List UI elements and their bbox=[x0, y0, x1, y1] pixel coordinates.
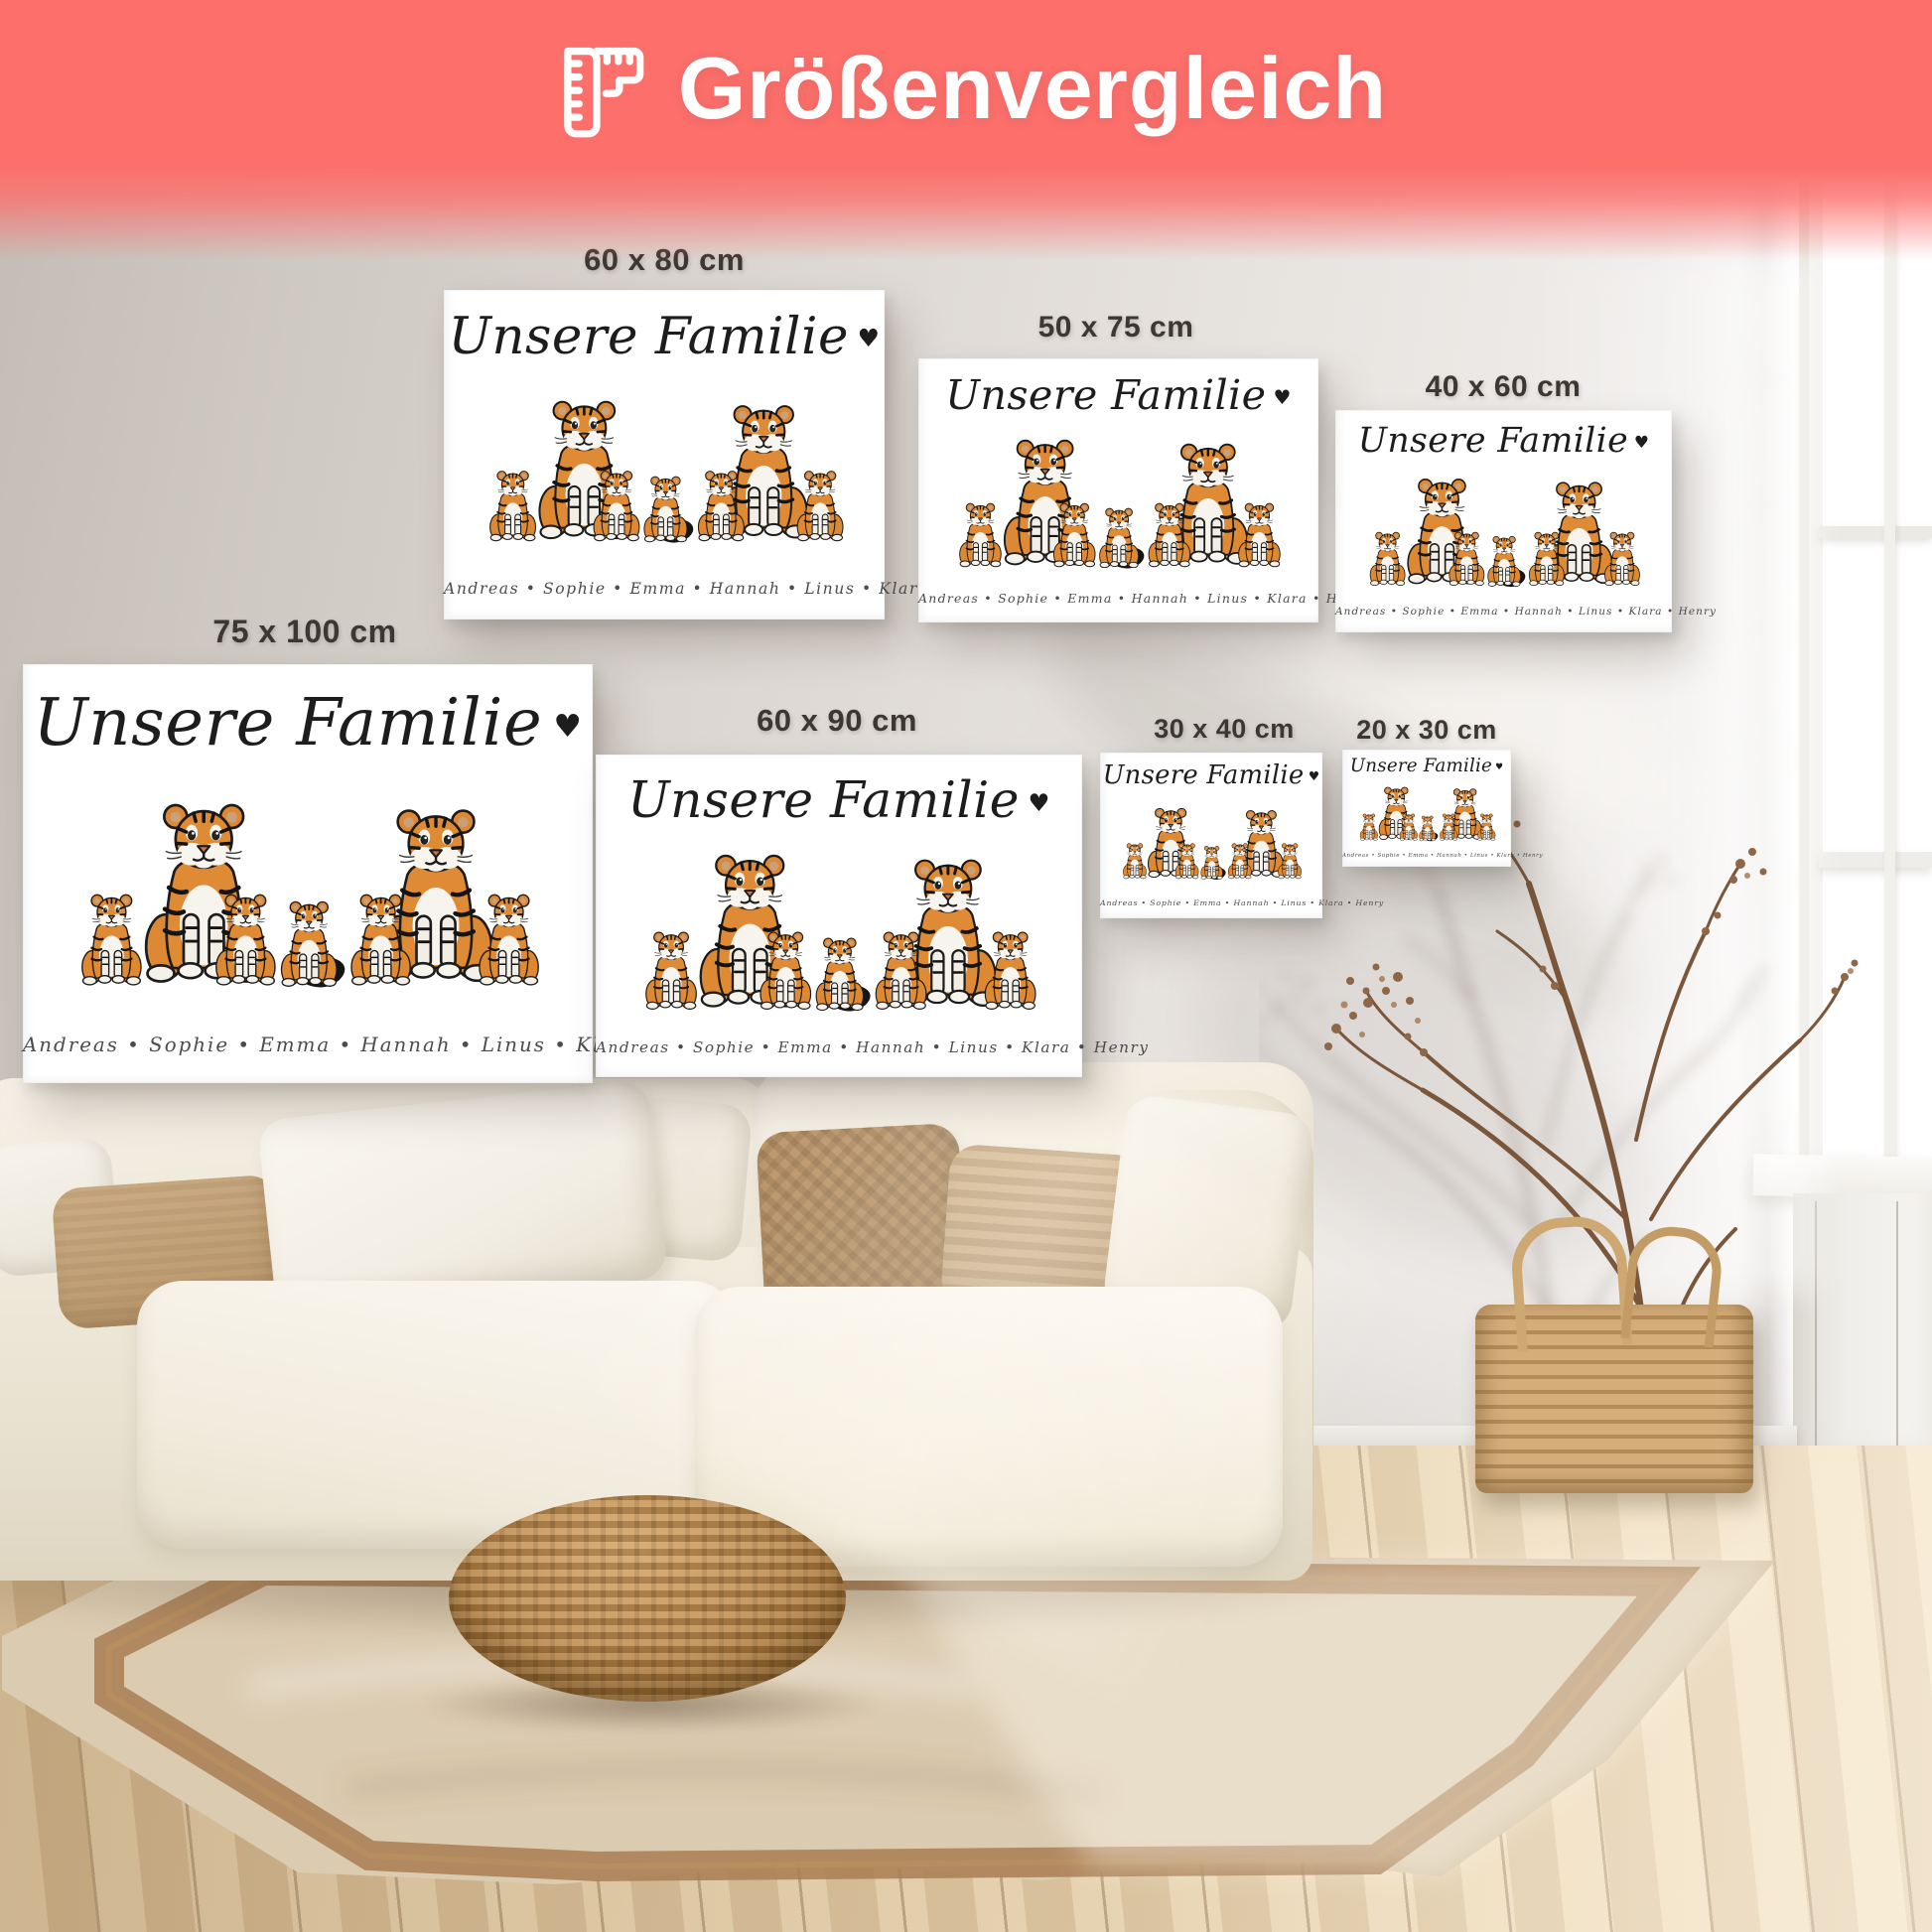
poster-75x100: Unsere Familie♥Andreas • Sophie • Emma •… bbox=[23, 664, 593, 1083]
size-label-40x60: 40 x 60 cm bbox=[1354, 370, 1652, 404]
poster-30x40: Unsere Familie♥Andreas • Sophie • Emma •… bbox=[1100, 753, 1322, 918]
poster-title: Unsere Familie♥ bbox=[23, 685, 593, 760]
poster-title-text: Unsere Familie bbox=[1103, 760, 1305, 790]
poster-title-text: Unsere Familie bbox=[1358, 421, 1628, 461]
ruler-icon bbox=[545, 37, 648, 140]
size-label-50x75: 50 x 75 cm bbox=[967, 311, 1265, 345]
poster-names: Andreas • Sophie • Emma • Hannah • Linus… bbox=[1335, 606, 1672, 618]
heart-icon: ♥ bbox=[1309, 768, 1319, 783]
poster-60x90: Unsere Familie♥Andreas • Sophie • Emma •… bbox=[596, 755, 1082, 1077]
poster-40x60: Unsere Familie♥Andreas • Sophie • Emma •… bbox=[1335, 410, 1672, 632]
heart-icon: ♥ bbox=[858, 324, 881, 352]
poster-title: Unsere Familie♥ bbox=[444, 307, 885, 366]
heart-icon: ♥ bbox=[553, 709, 582, 745]
poster-title: Unsere Familie♥ bbox=[1100, 760, 1322, 790]
tiger-family-illustration bbox=[69, 775, 547, 1006]
heart-icon: ♥ bbox=[1029, 788, 1050, 817]
poster-names: Andreas • Sophie • Emma • Hannah • Linus… bbox=[23, 1034, 593, 1056]
poster-60x80: Unsere Familie♥Andreas • Sophie • Emma •… bbox=[444, 290, 885, 620]
size-label-75x100: 75 x 100 cm bbox=[156, 614, 454, 650]
tiger-family-illustration bbox=[1362, 469, 1645, 591]
living-room-product-mockup: Größenvergleich 60 x 80 cmUnsere Familie… bbox=[0, 0, 1932, 1932]
poster-title: Unsere Familie♥ bbox=[1335, 421, 1672, 461]
heart-icon: ♥ bbox=[1273, 385, 1291, 409]
poster-50x75: Unsere Familie♥Andreas • Sophie • Emma •… bbox=[918, 358, 1318, 622]
tiger-family-illustration bbox=[480, 377, 850, 559]
tiger-family-illustration bbox=[1118, 796, 1305, 888]
wicker-basket bbox=[1475, 1305, 1753, 1493]
heart-icon: ♥ bbox=[1634, 432, 1649, 452]
banner-title: Größenvergleich bbox=[678, 38, 1387, 139]
poster-title-text: Unsere Familie bbox=[627, 770, 1020, 829]
poster-title-text: Unsere Familie bbox=[448, 307, 848, 366]
poster-title-text: Unsere Familie bbox=[945, 371, 1266, 419]
size-label-20x30: 20 x 30 cm bbox=[1278, 715, 1576, 746]
size-comparison-banner: Größenvergleich bbox=[0, 0, 1932, 260]
poster-names: Andreas • Sophie • Emma • Hannah • Linus… bbox=[1100, 898, 1322, 907]
poster-names: Andreas • Sophie • Emma • Hannah • Linus… bbox=[918, 591, 1318, 606]
poster-names: Andreas • Sophie • Emma • Hannah • Linus… bbox=[444, 580, 885, 598]
size-label-60x90: 60 x 90 cm bbox=[688, 703, 986, 739]
heart-icon: ♥ bbox=[1495, 762, 1503, 772]
poster-names: Andreas • Sophie • Emma • Hannah • Linus… bbox=[1342, 853, 1511, 859]
wicker-pouf bbox=[449, 1495, 846, 1702]
tiger-family-illustration bbox=[950, 428, 1287, 573]
window-rail bbox=[1819, 526, 1932, 538]
basket-handle bbox=[1509, 1213, 1633, 1352]
poster-title-text: Unsere Familie bbox=[1350, 756, 1492, 776]
tiger-family-illustration bbox=[634, 840, 1043, 1018]
poster-title-text: Unsere Familie bbox=[34, 685, 543, 760]
tiger-family-illustration bbox=[1356, 780, 1498, 845]
poster-names: Andreas • Sophie • Emma • Hannah • Linus… bbox=[596, 1038, 1082, 1056]
poster-title: Unsere Familie♥ bbox=[1342, 756, 1511, 776]
poster-title: Unsere Familie♥ bbox=[918, 371, 1318, 419]
poster-20x30: Unsere Familie♥Andreas • Sophie • Emma •… bbox=[1342, 750, 1511, 867]
cabinet-seam bbox=[1896, 1201, 1898, 1479]
poster-title: Unsere Familie♥ bbox=[596, 770, 1082, 829]
